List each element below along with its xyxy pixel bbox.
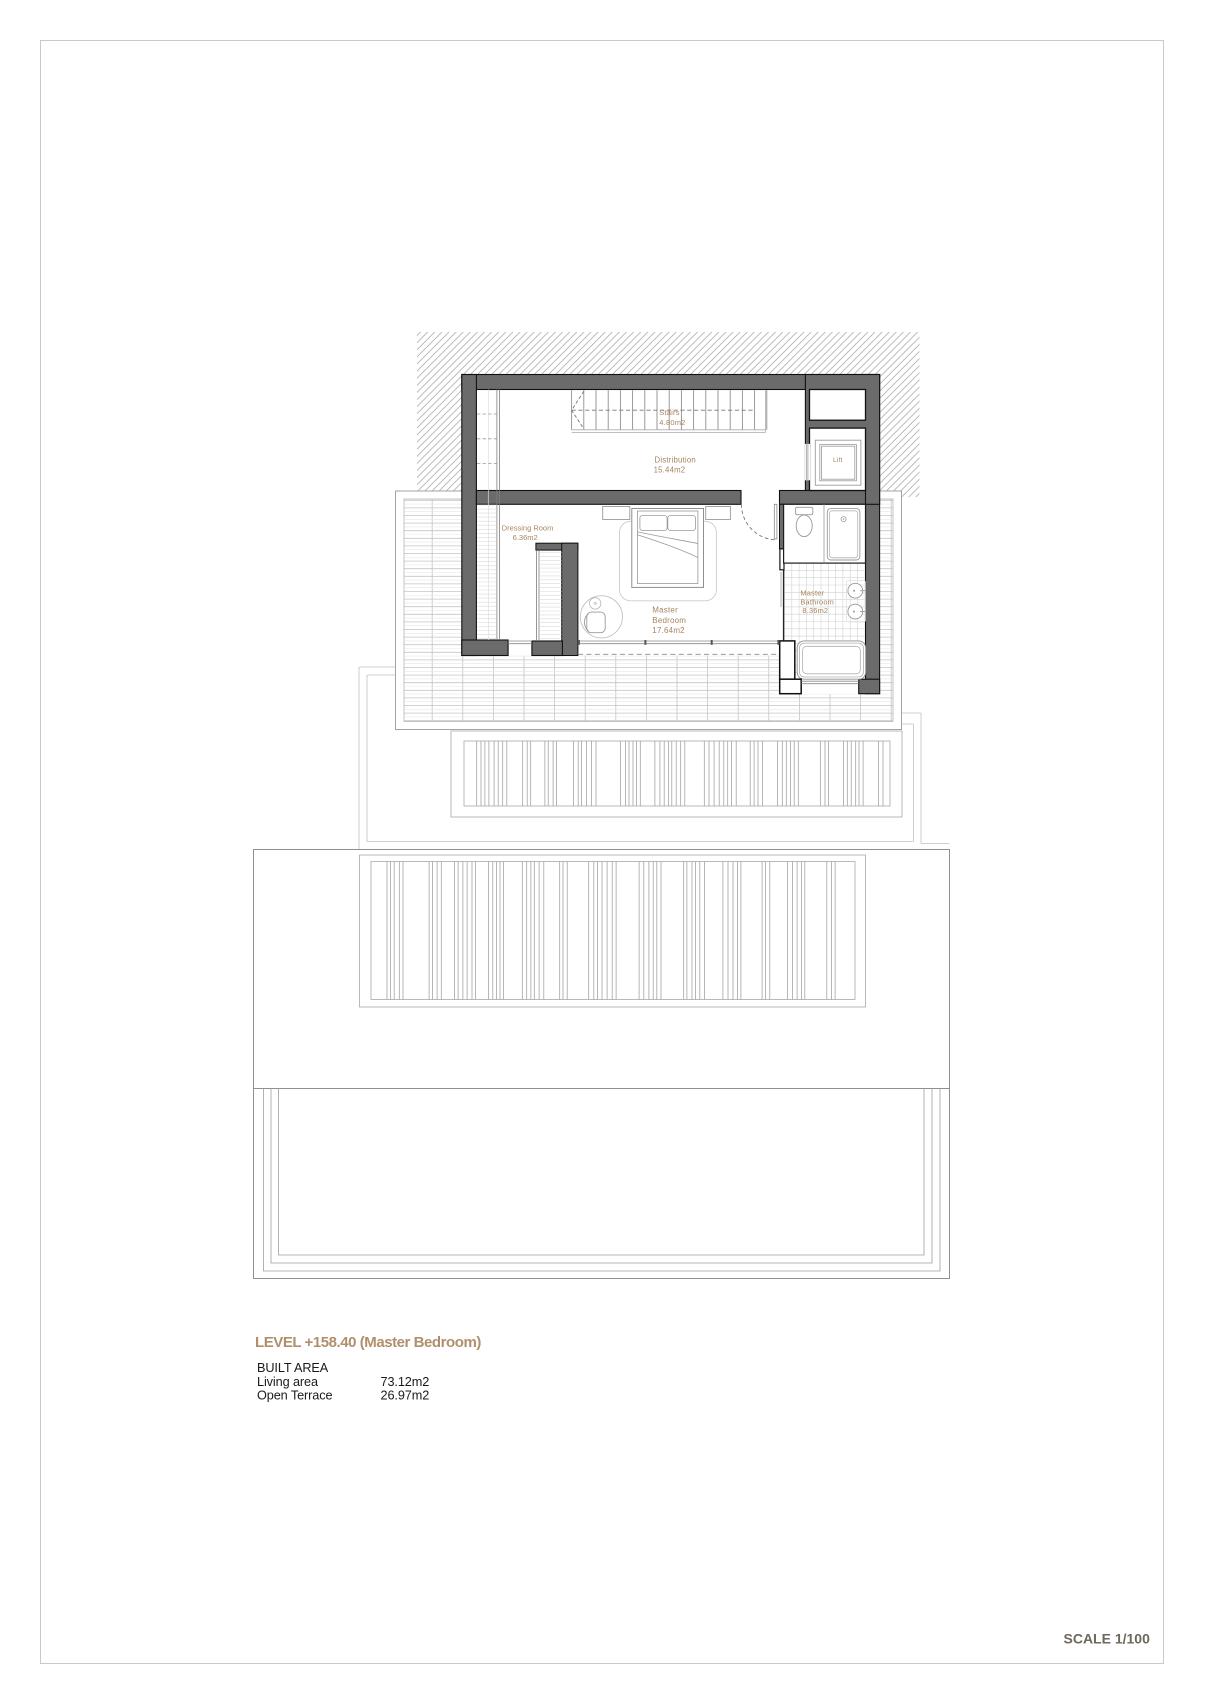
svg-text:Living area: Living area [257, 1375, 319, 1389]
svg-text:26.97m2: 26.97m2 [381, 1389, 430, 1403]
svg-text:8.36m2: 8.36m2 [802, 606, 828, 615]
svg-text:Bedroom: Bedroom [652, 616, 686, 625]
svg-text:BUILT AREA: BUILT AREA [257, 1361, 329, 1375]
svg-text:Dressing Room: Dressing Room [502, 523, 554, 532]
svg-text:SCALE 1/100: SCALE 1/100 [1064, 1631, 1151, 1647]
svg-text:4.80m2: 4.80m2 [659, 418, 685, 427]
svg-text:Open Terrace: Open Terrace [257, 1389, 332, 1403]
svg-text:Master: Master [800, 588, 824, 597]
svg-text:Distribution: Distribution [655, 455, 696, 464]
svg-text:73.12m2: 73.12m2 [381, 1375, 430, 1389]
svg-text:Bathroom: Bathroom [800, 597, 834, 606]
svg-text:6.36m2: 6.36m2 [513, 533, 538, 542]
svg-text:17.64m2: 17.64m2 [652, 626, 685, 635]
svg-text:LEVEL +158.40 (Master Bedroom): LEVEL +158.40 (Master Bedroom) [255, 1334, 481, 1351]
svg-text:Lift: Lift [833, 457, 843, 464]
svg-text:Stairs: Stairs [659, 408, 679, 417]
svg-text:Master: Master [652, 606, 678, 615]
svg-text:15.44m2: 15.44m2 [654, 465, 686, 474]
